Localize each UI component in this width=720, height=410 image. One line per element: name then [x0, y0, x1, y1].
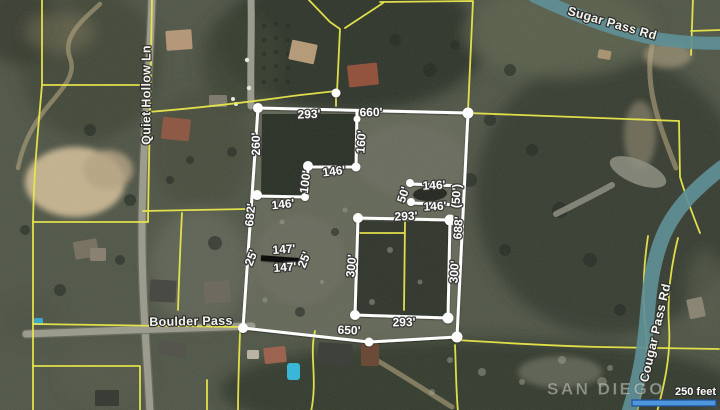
dim-strip-bottom: 147' — [273, 259, 297, 275]
dim-inner-top: 146' — [322, 163, 347, 180]
dim-lot-right: 300' — [446, 260, 462, 284]
dim-inner-left: 146' — [271, 196, 295, 212]
dim-strip-top: 147' — [272, 241, 296, 257]
dim-lot-left: 300' — [343, 254, 359, 278]
dim-inner-mid: 100' — [297, 170, 314, 195]
dim-right-paren: (50') — [449, 184, 464, 209]
dim-outer-bottom: 650' — [337, 323, 360, 338]
scale-bar-rect — [632, 400, 716, 406]
dim-lot-top: 293' — [394, 209, 417, 224]
dim-easement-top: 146' — [422, 178, 446, 193]
quiet-hollow-ln-label: Quiet Hollow Ln — [139, 45, 153, 145]
swimming-pool — [287, 363, 300, 380]
satellite-parcel-map: 293' 660' 260' 682' 160' 146' 100' 146' … — [0, 0, 720, 410]
dim-left-upper: 260' — [249, 132, 263, 155]
map-image[interactable]: 293' 660' 260' 682' 160' 146' 100' 146' … — [0, 0, 720, 410]
dim-inner-vertical: 160' — [353, 130, 369, 154]
terrain-layer — [0, 0, 720, 410]
boulder-pass-label: Boulder Pass — [149, 314, 233, 329]
satellite-noise-texture — [0, 0, 720, 410]
dim-top-left: 293' — [297, 107, 320, 122]
driveway-north — [251, 0, 252, 106]
dim-easement-bottom: 146' — [423, 199, 447, 214]
dim-right-full: 688' — [450, 216, 466, 240]
dim-left-full: 682' — [242, 203, 258, 227]
dim-lot-bottom: 293' — [392, 315, 415, 329]
dim-top-right: 660' — [359, 105, 382, 119]
scale-bar-label: 250 feet — [675, 386, 716, 398]
watermark-text: SAN DIEGO — [547, 379, 665, 398]
